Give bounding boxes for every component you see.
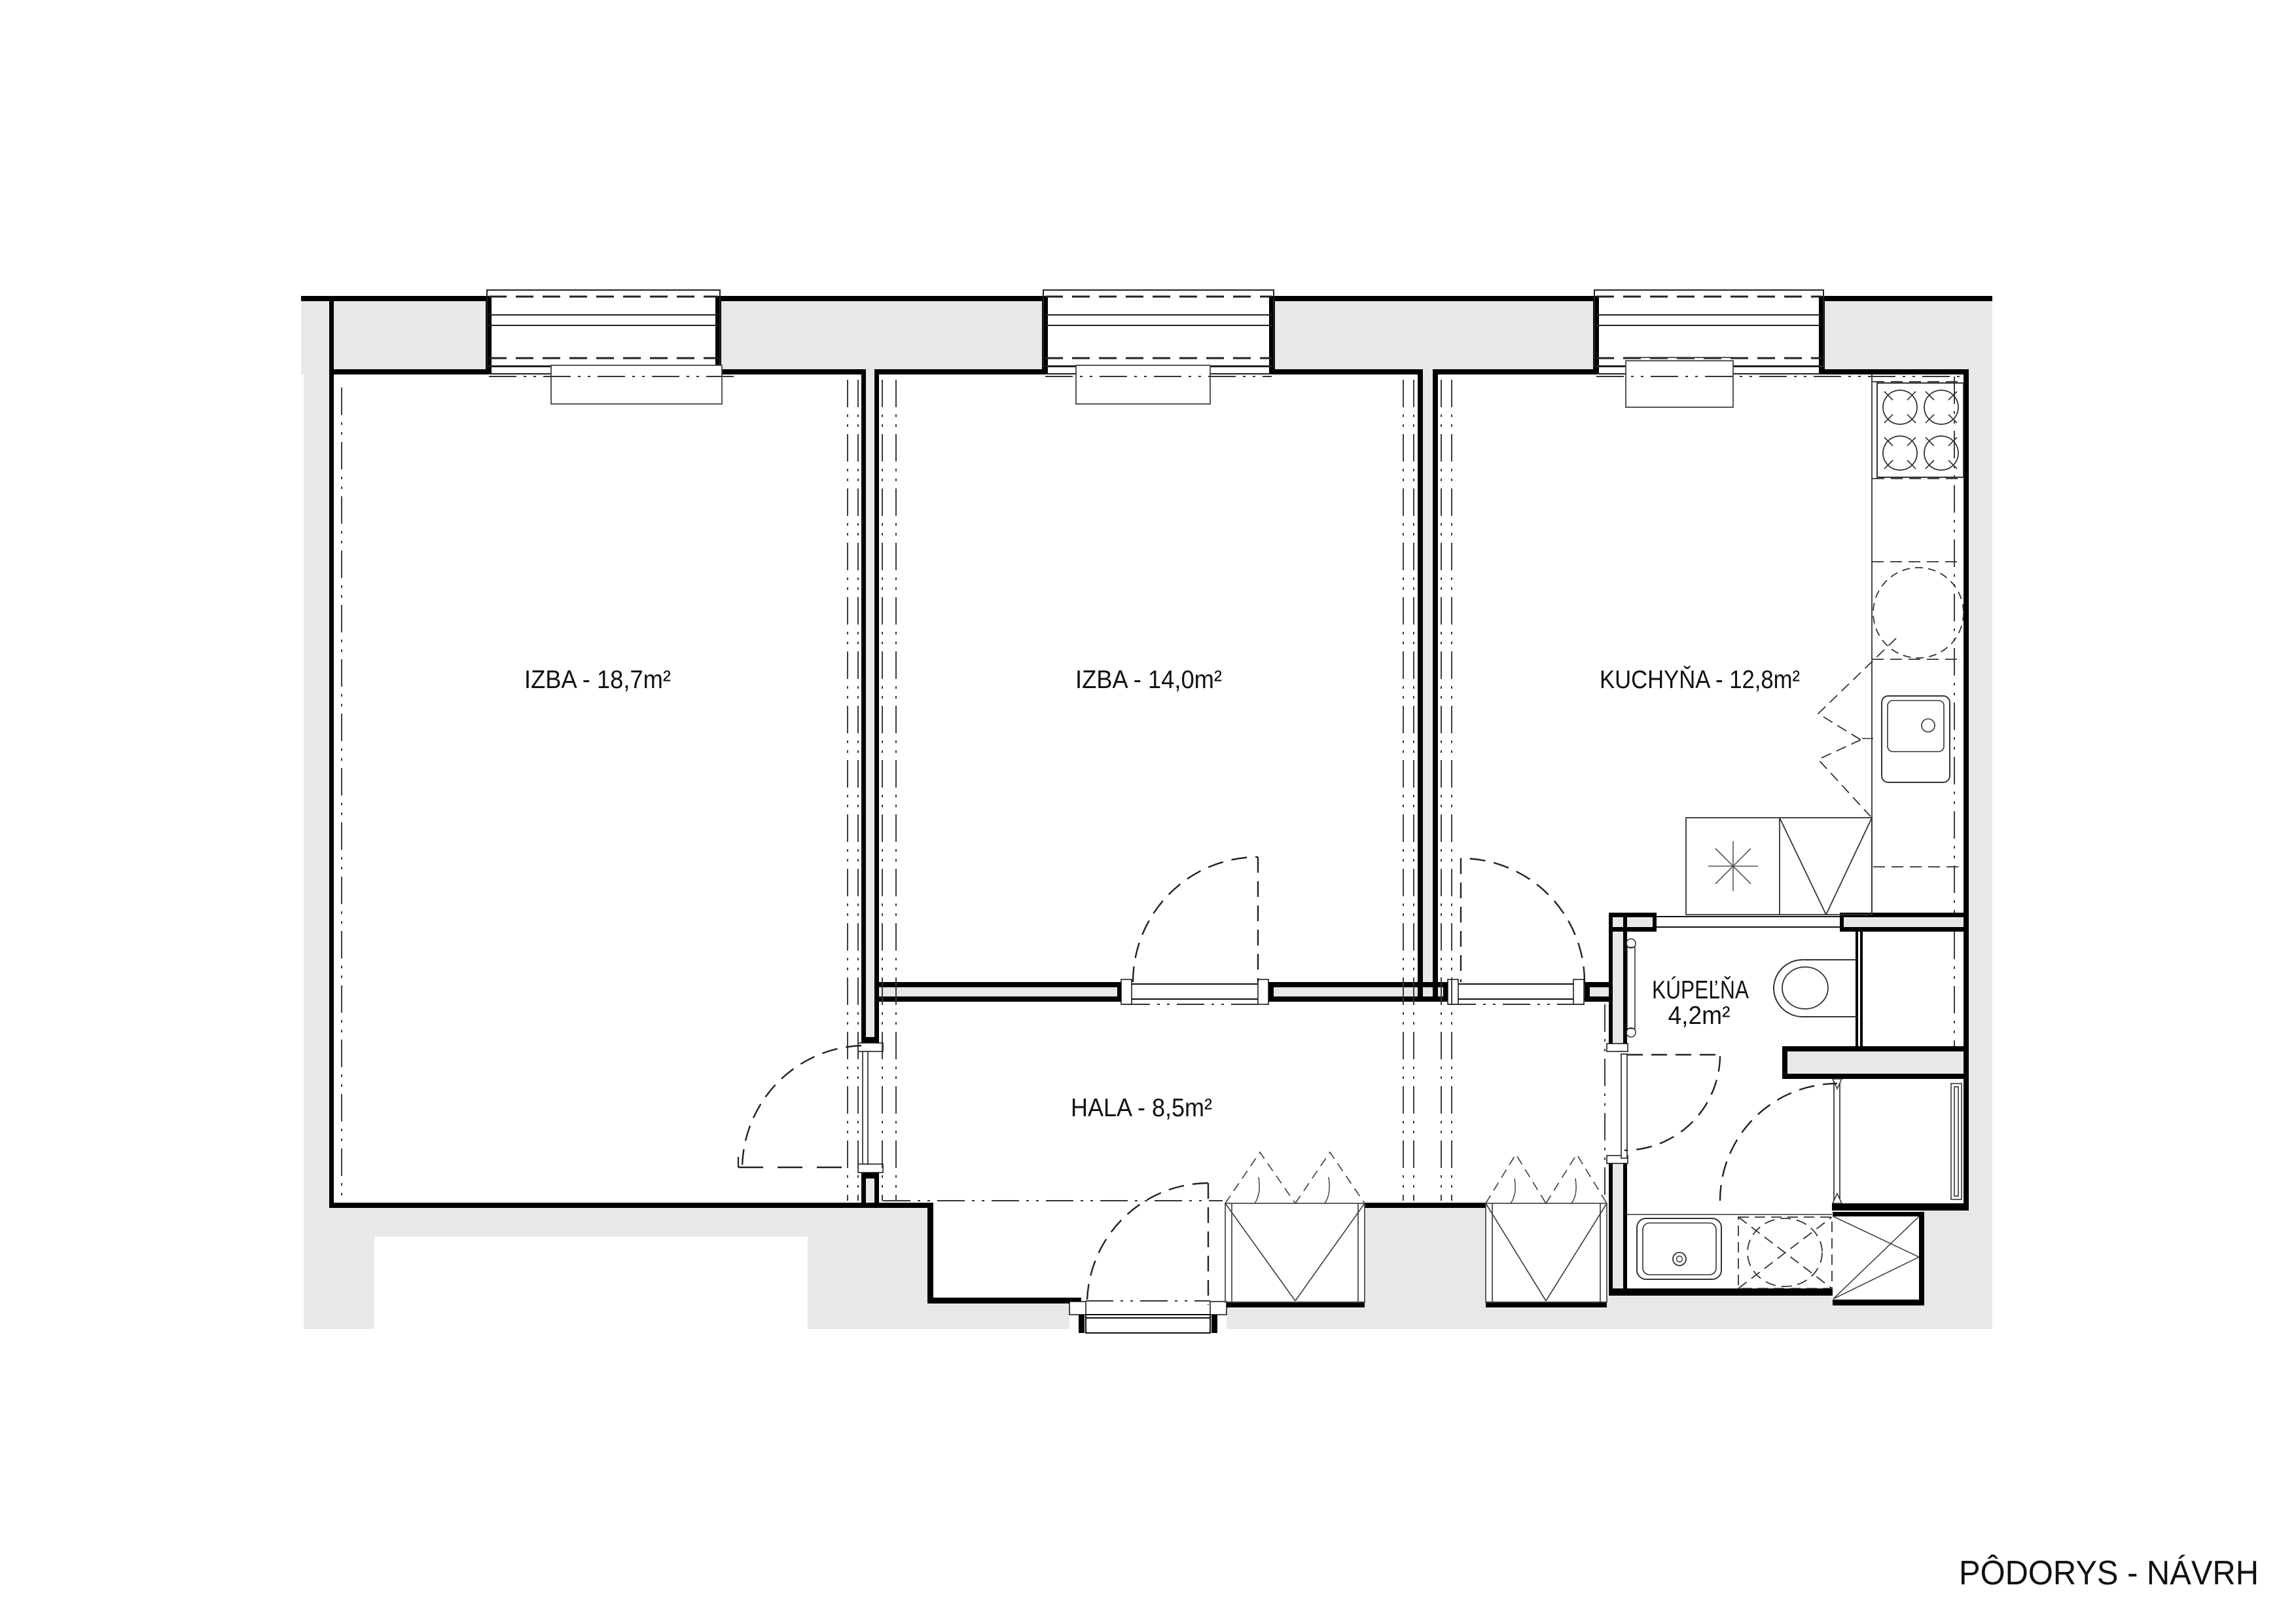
svg-text:IZBA - 18,7m²: IZBA - 18,7m² <box>524 666 671 694</box>
svg-text:PÔDORYS - NÁVRH: PÔDORYS - NÁVRH <box>1959 1554 2259 1592</box>
svg-text:KÚPEĽŇA: KÚPEĽŇA <box>1652 976 1749 1004</box>
svg-text:IZBA - 14,0m²: IZBA - 14,0m² <box>1075 666 1222 694</box>
svg-text:HALA - 8,5m²: HALA - 8,5m² <box>1071 1094 1212 1122</box>
svg-text:4,2m²: 4,2m² <box>1668 1002 1731 1030</box>
svg-text:KUCHYŇA - 12,8m²: KUCHYŇA - 12,8m² <box>1600 666 1800 694</box>
